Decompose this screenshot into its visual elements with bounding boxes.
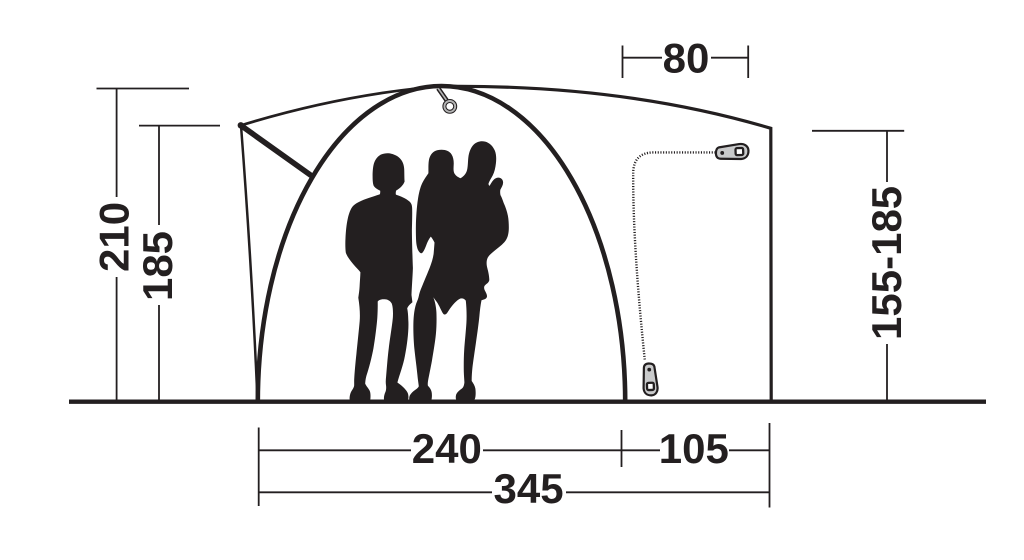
svg-text:345: 345	[494, 465, 564, 512]
svg-text:80: 80	[663, 35, 710, 82]
svg-text:155-185: 155-185	[863, 186, 910, 340]
svg-text:105: 105	[659, 425, 729, 472]
svg-text:240: 240	[412, 425, 482, 472]
svg-text:185: 185	[134, 231, 181, 301]
svg-text:210: 210	[90, 202, 137, 272]
